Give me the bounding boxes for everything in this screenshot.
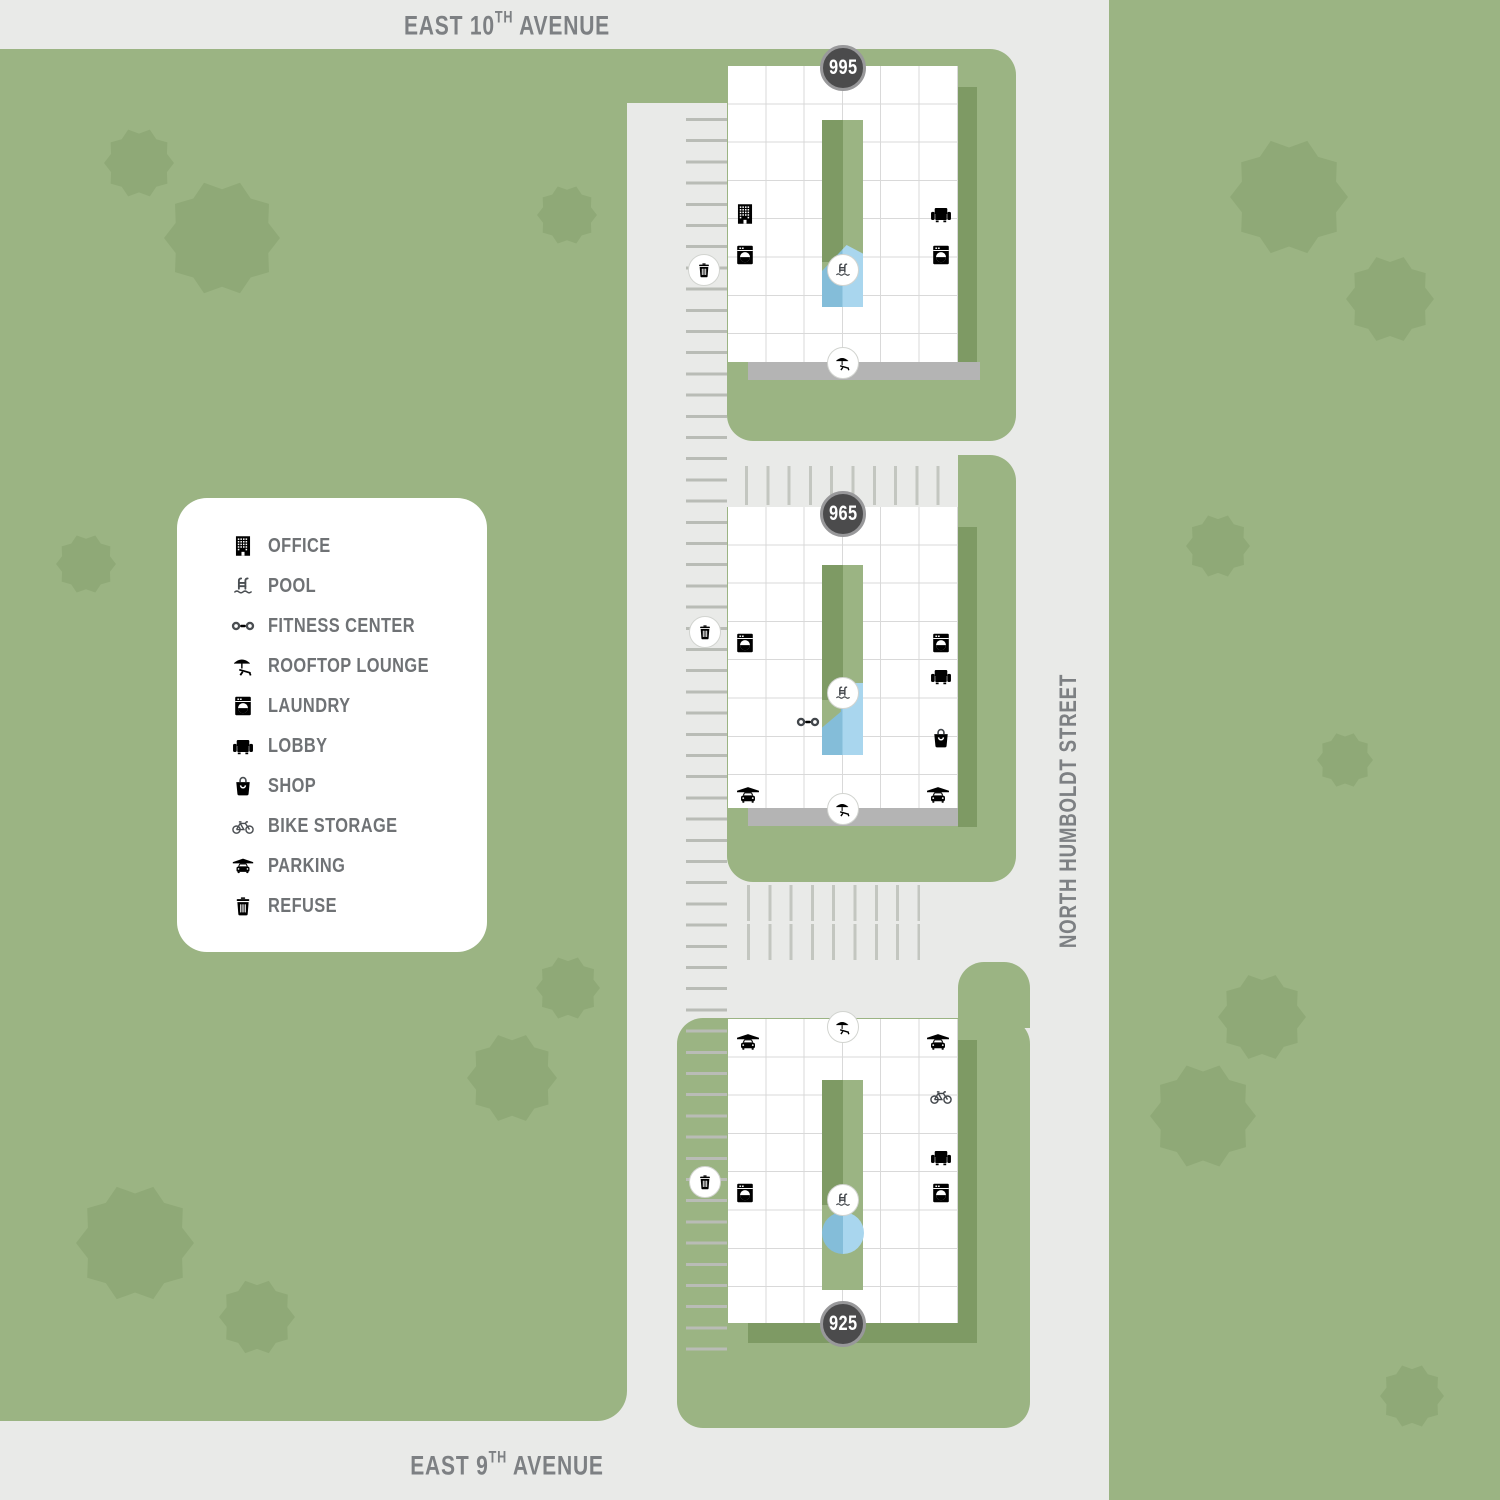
refuse-icon [694,260,714,280]
laundry-icon [928,1180,954,1206]
parking-icon [733,781,763,809]
rooftop-lounge-marker-965 [827,793,859,825]
legend-label: OFFICE [268,535,331,558]
legend-label: POOL [268,575,316,598]
building-925-shade [958,1040,977,1343]
street-name-north-humboldt-street: NORTH HUMBOLDT STREET [1055,635,1083,987]
legend-item-bike-storage: BIKE STORAGE [230,806,487,846]
parking-stalls-mid-row-top [747,885,920,921]
parking-icon [733,1028,763,1056]
office-icon [230,533,256,559]
legend-item-shop: SHOP [230,766,487,806]
laundry-icon [732,630,758,656]
legend-label: LOBBY [268,735,327,758]
lobby-icon [927,663,955,689]
building-925-lawn-strip [958,962,1030,1028]
laundry-icon [732,1180,758,1206]
fitness-center-icon [794,709,822,735]
pool-icon [230,573,256,599]
pool-marker-925 [827,1184,859,1216]
pool-marker-995 [827,254,859,286]
legend-label: SHOP [268,775,316,798]
bike-storage-icon [926,1083,956,1109]
street-name-east-10th-avenue: EAST 10TH AVENUE [375,11,639,42]
rooftop-lounge-icon [833,353,853,373]
pool-marker-965 [827,677,859,709]
building-925-badge: 925 [820,1301,866,1347]
legend-label: ROOFTOP LOUNGE [268,655,429,678]
legend-item-rooftop-lounge: ROOFTOP LOUNGE [230,646,487,686]
rooftop-lounge-icon [833,1017,853,1037]
rooftop-lounge-marker-925 [827,1011,859,1043]
site-map: 995 965 925 OFFICE POOL FITNESS CENTER R… [0,0,1500,1500]
pool-icon [833,260,853,280]
parking-stalls-mid-row-bottom [747,924,920,960]
legend-item-refuse: REFUSE [230,886,487,926]
legend-item-office: OFFICE [230,526,487,566]
pool-icon [833,683,853,703]
legend-label: LAUNDRY [268,695,350,718]
parking-icon [230,853,256,879]
rooftop-lounge-marker-995 [827,347,859,379]
legend-label: PARKING [268,855,345,878]
laundry-icon [732,242,758,268]
pool-925 [822,1212,864,1254]
laundry-icon [928,242,954,268]
shop-icon [230,773,256,799]
office-icon [732,201,758,227]
refuse-icon [695,1172,715,1192]
building-965-badge: 965 [820,491,866,537]
refuse-marker-995 [688,254,720,286]
laundry-icon [230,693,256,719]
refuse-icon [695,622,715,642]
building-995-shadow-bar [748,362,980,380]
lobby-icon [230,733,256,759]
building-number: 995 [829,56,858,80]
refuse-marker-925 [689,1166,721,1198]
building-995-shade [958,87,977,380]
legend-item-laundry: LAUNDRY [230,686,487,726]
rooftop-lounge-icon [833,799,853,819]
legend-item-fitness-center: FITNESS CENTER [230,606,487,646]
building-965-lawn-strip [958,455,1016,515]
refuse-marker-965 [689,616,721,648]
building-number: 925 [829,1312,858,1336]
building-number: 965 [829,502,858,526]
laundry-icon [928,630,954,656]
building-995-badge: 995 [820,45,866,91]
fitness-center-icon [230,613,256,639]
building-965-shade [958,527,977,827]
lobby-icon [927,201,955,227]
building-995-courtyard-shade [822,120,843,262]
legend-label: REFUSE [268,895,337,918]
rooftop-lounge-icon [230,653,256,679]
parking-icon [923,1028,953,1056]
pool-icon [833,1190,853,1210]
street-name-east-9th-avenue: EAST 9TH AVENUE [383,1451,631,1482]
legend-item-lobby: LOBBY [230,726,487,766]
legend-item-pool: POOL [230,566,487,606]
lawn-north-band [0,49,727,103]
lobby-icon [927,1144,955,1170]
legend-panel: OFFICE POOL FITNESS CENTER ROOFTOP LOUNG… [177,498,487,952]
legend-label: BIKE STORAGE [268,815,397,838]
refuse-icon [230,893,256,919]
legend-item-parking: PARKING [230,846,487,886]
shop-icon [928,725,954,751]
bike-storage-icon [230,813,256,839]
legend-label: FITNESS CENTER [268,615,415,638]
parking-icon [923,781,953,809]
